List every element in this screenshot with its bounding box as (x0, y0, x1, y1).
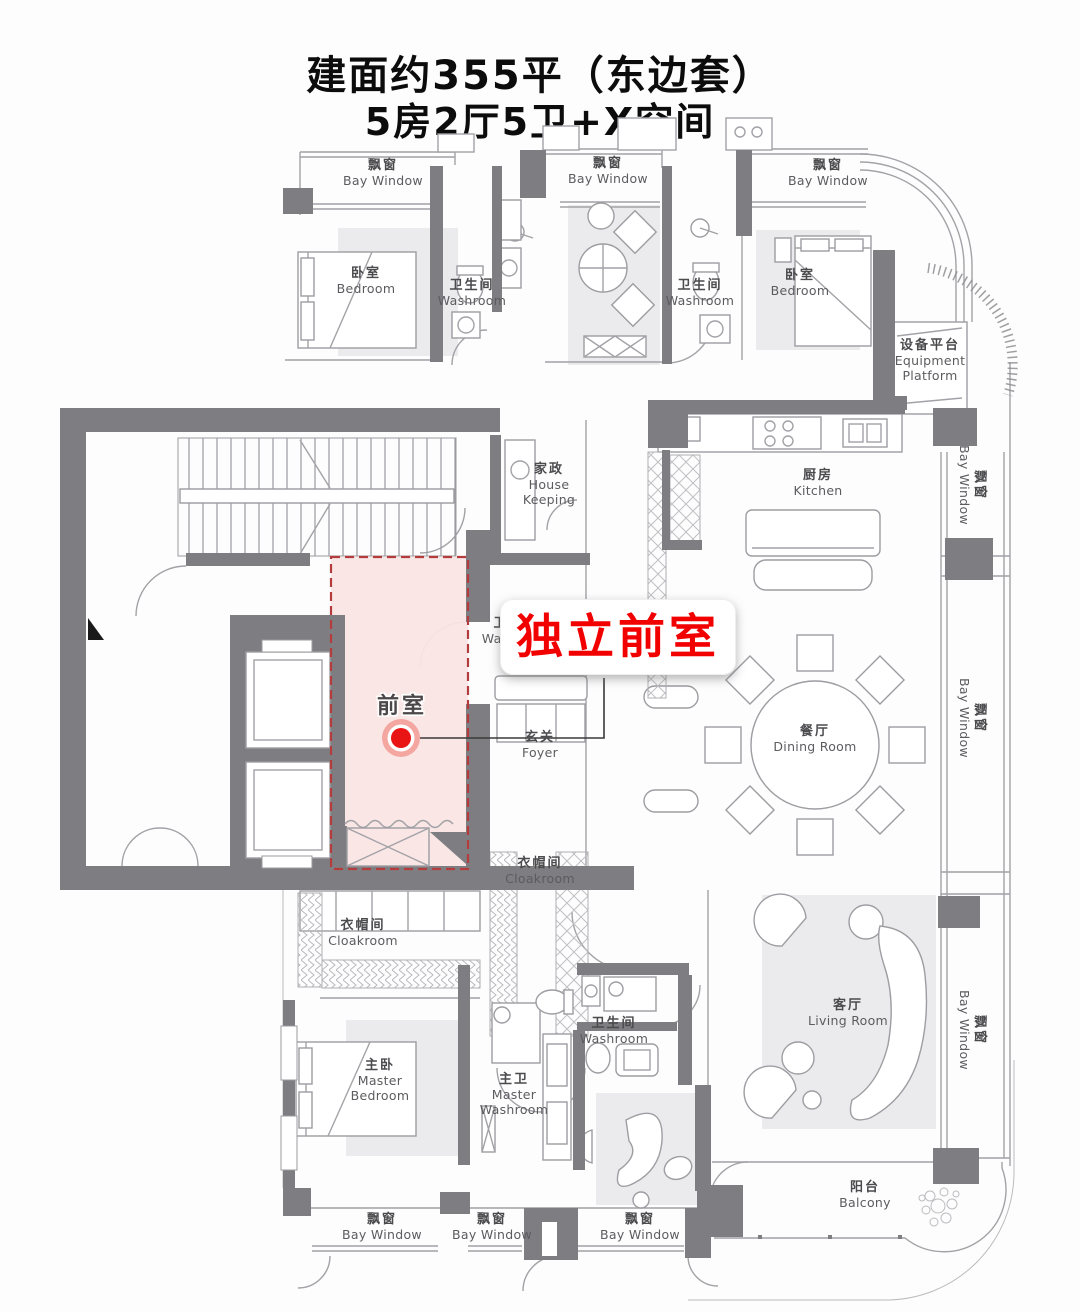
room-label-dining-room: 餐厅Dining Room (755, 724, 875, 754)
room-label-house-keeping: 家政House Keeping (518, 462, 580, 507)
room-label-bay-window-right-middle: 飘窗Bay Window (957, 658, 987, 778)
callout-independent-anteroom: 独立前室 (500, 599, 736, 675)
room-label-living-room: 客厅Living Room (788, 998, 908, 1028)
room-label-equipment-platform: 设备平台Equipment Platform (890, 338, 970, 383)
room-label-cloakroom-right: 衣帽间Cloakroom (490, 856, 590, 886)
room-label-bay-window-bottom-left: 飘窗Bay Window (327, 1212, 437, 1242)
room-label-bedroom-top-left: 卧室Bedroom (321, 266, 411, 296)
room-label-washroom-top-middle: 卫生间Washroom (657, 278, 743, 308)
stair-core (178, 438, 456, 556)
room-label-washroom-top-left: 卫生间Washroom (429, 278, 515, 308)
anteroom-marker-dot (391, 728, 411, 748)
room-label-balcony: 阳台Balcony (820, 1180, 910, 1210)
room-label-bay-window-top-middle: 飘窗Bay Window (553, 156, 663, 186)
room-label-bay-window-bottom-right: 飘窗Bay Window (585, 1212, 695, 1242)
room-label-master-washroom: 主卫Master Washroom (474, 1072, 554, 1117)
room-label-bay-window-right-upper: 飘窗Bay Window (957, 425, 987, 545)
room-label-foyer: 玄关Foyer (505, 730, 575, 760)
room-label-bay-window-top-right: 飘窗Bay Window (773, 158, 883, 188)
room-label-master-bedroom: 主卧Master Bedroom (345, 1058, 415, 1103)
room-label-bay-window-top-left: 飘窗Bay Window (328, 158, 438, 188)
room-label-bedroom-top-right: 卧室Bedroom (755, 268, 845, 298)
room-label-kitchen: 厨房Kitchen (773, 468, 863, 498)
floor-plan: 建面约355平（东边套） 5房2厅5卫+X空间 (0, 0, 1080, 1312)
room-label-washroom-lower: 卫生间Washroom (571, 1016, 657, 1046)
room-label-bay-window-right-lower: 飘窗Bay Window (957, 970, 987, 1090)
callout-text: 独立前室 (516, 614, 720, 661)
room-label-bay-window-bottom-middle: 飘窗Bay Window (437, 1212, 547, 1242)
anteroom-label: 前室 (377, 688, 427, 720)
room-label-cloakroom-left: 衣帽间Cloakroom (313, 918, 413, 948)
